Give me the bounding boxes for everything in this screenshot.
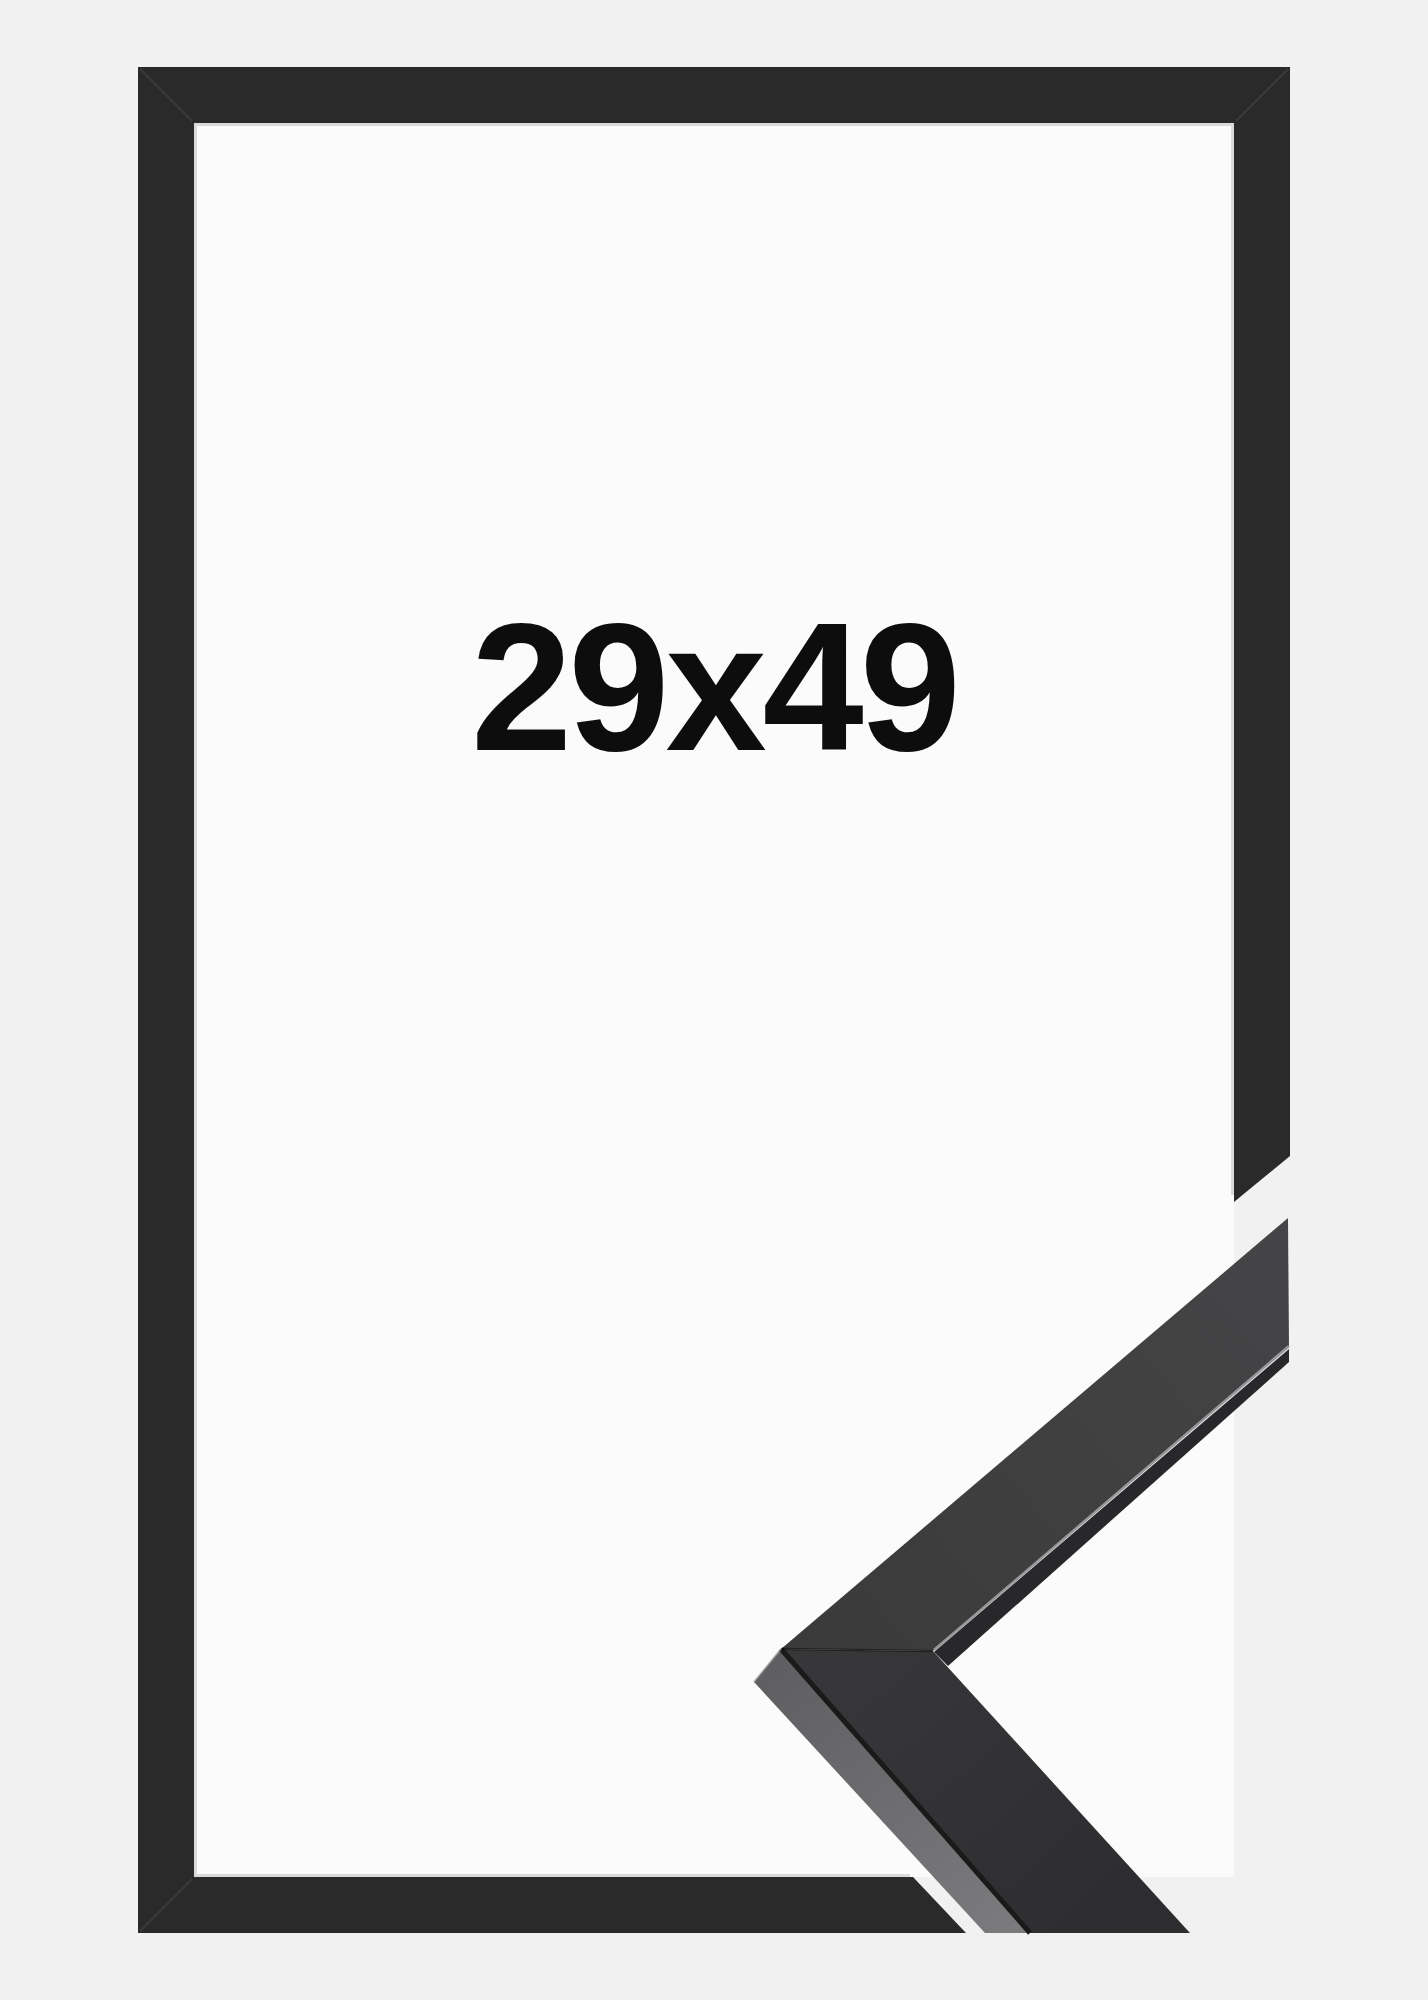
frame-inner-mount-area <box>194 123 1234 1877</box>
size-label: 29x49 <box>471 585 957 789</box>
product-image-frame-29x49: 29x49 <box>0 0 1428 2000</box>
frame-product-visualization: 29x49 <box>0 0 1428 2000</box>
